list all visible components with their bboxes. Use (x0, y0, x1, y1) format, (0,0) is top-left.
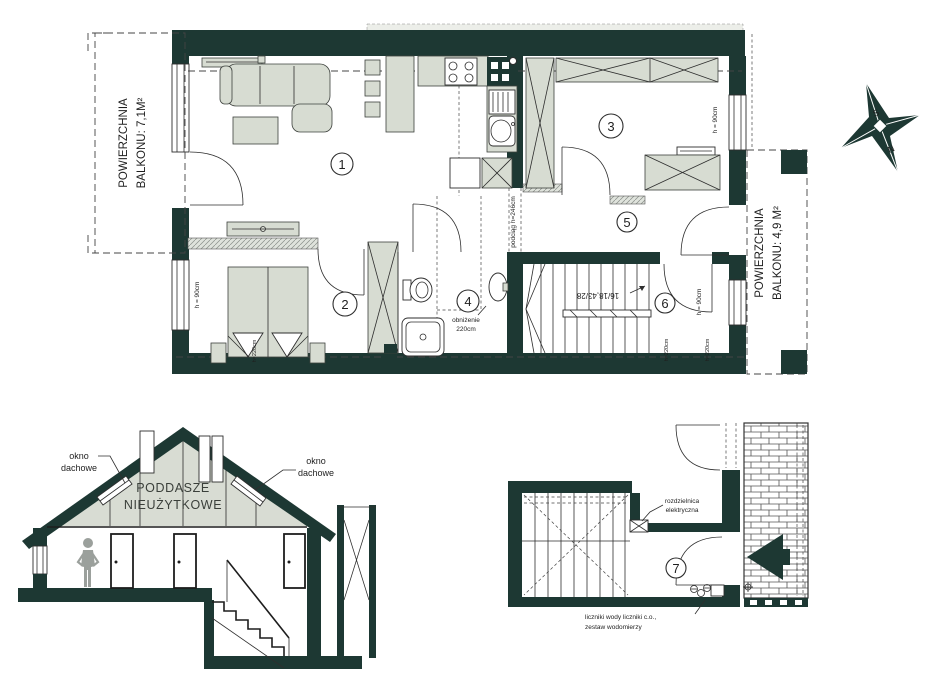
attic-label: PODDASZE (136, 481, 210, 495)
main-floor-plan: 1 2 3 4 5 6 h = 90cm h = 90cm h = 90cm h… (172, 24, 752, 374)
roof-outline-strip (367, 24, 743, 31)
room-number-2: 2 (341, 297, 348, 312)
dining-table (386, 56, 414, 132)
ground-floor-plan-fragment: 7 rozdzielnica elektryczna liczniki wody… (508, 423, 808, 631)
roof-window-label: okno (69, 451, 89, 461)
section-door (284, 534, 305, 588)
balcony-left: POWIERZCHNIA BALKONU: 7,1M² (88, 33, 185, 253)
room-number-5: 5 (623, 215, 630, 230)
section-door (174, 534, 196, 588)
lower-staircase (522, 493, 630, 597)
balcony-right-label: POWIERZCHNIA (754, 208, 766, 298)
chimney (199, 436, 210, 482)
switchboard-label: rozdzielnica (665, 498, 700, 505)
beam-label: podciąg h=246cm (510, 196, 517, 248)
lintel-height-label: h=220cm (252, 339, 258, 362)
room-number-3: 3 (607, 119, 614, 134)
balcony-right: POWIERZCHNIA BALKONU: 4,9 M² (747, 150, 807, 374)
section-stairs (212, 560, 289, 668)
sill-height-label: h = 90cm (194, 282, 201, 309)
attic-label: NIEUŻYTKOWE (124, 498, 222, 512)
attic-space (50, 434, 317, 526)
chairs (365, 60, 380, 117)
kitchen (418, 56, 517, 188)
room-number-1: 1 (338, 157, 345, 172)
staircase (526, 264, 651, 353)
living-room-furniture (202, 56, 414, 144)
ceiling-drop-label: 220cm (456, 326, 476, 333)
water-meters (691, 585, 725, 597)
nightstand (211, 343, 226, 363)
building-cross-section: PODDASZE NIEUŻYTKOWE okno dachowe okno d… (18, 427, 376, 669)
room-number-6: 6 (661, 296, 668, 311)
balcony-left-label: POWIERZCHNIA (118, 98, 130, 188)
exterior-brick-wall (743, 423, 808, 607)
sill-height-label: h = 90cm (712, 107, 719, 134)
room-number-4: 4 (464, 294, 471, 309)
lintel-height-label: h=220cm (664, 338, 670, 361)
lintel-height-label: h=220cm (705, 338, 711, 361)
nightstand (310, 343, 325, 363)
balcony-left-label: BALKONU: 7,1M² (136, 97, 148, 188)
section-door (111, 534, 133, 588)
switchboard-label: elektryczna (666, 507, 699, 514)
ceiling-drop-label: obniżenie (452, 317, 480, 324)
roof-window-label: dachowe (298, 468, 334, 478)
sill-height-label: h = 90cm (696, 289, 703, 316)
meters-label: zestaw wodomierzy (585, 624, 642, 631)
roof-window-label: dachowe (61, 463, 97, 473)
stair-dimension-label: 16/18,43/28 (576, 291, 619, 300)
architectural-drawing-sheet: 1 2 3 4 5 6 h = 90cm h = 90cm h = 90cm h… (0, 0, 949, 674)
shower-tray (402, 318, 444, 356)
roof-window-label: okno (306, 456, 326, 466)
toilet (410, 278, 432, 302)
chimney (212, 436, 223, 482)
bathroom-fixtures (398, 252, 508, 356)
floor-slab (18, 588, 212, 602)
room-number-7: 7 (672, 561, 679, 576)
coffee-table (233, 117, 278, 144)
meters-label: liczniki wody liczniki c.o., (585, 614, 656, 621)
balcony-right-label: BALKONU: 4,9 M² (772, 206, 784, 300)
person-silhouette (78, 538, 98, 587)
compass-rose: S N (841, 83, 920, 172)
chimney (140, 431, 154, 473)
